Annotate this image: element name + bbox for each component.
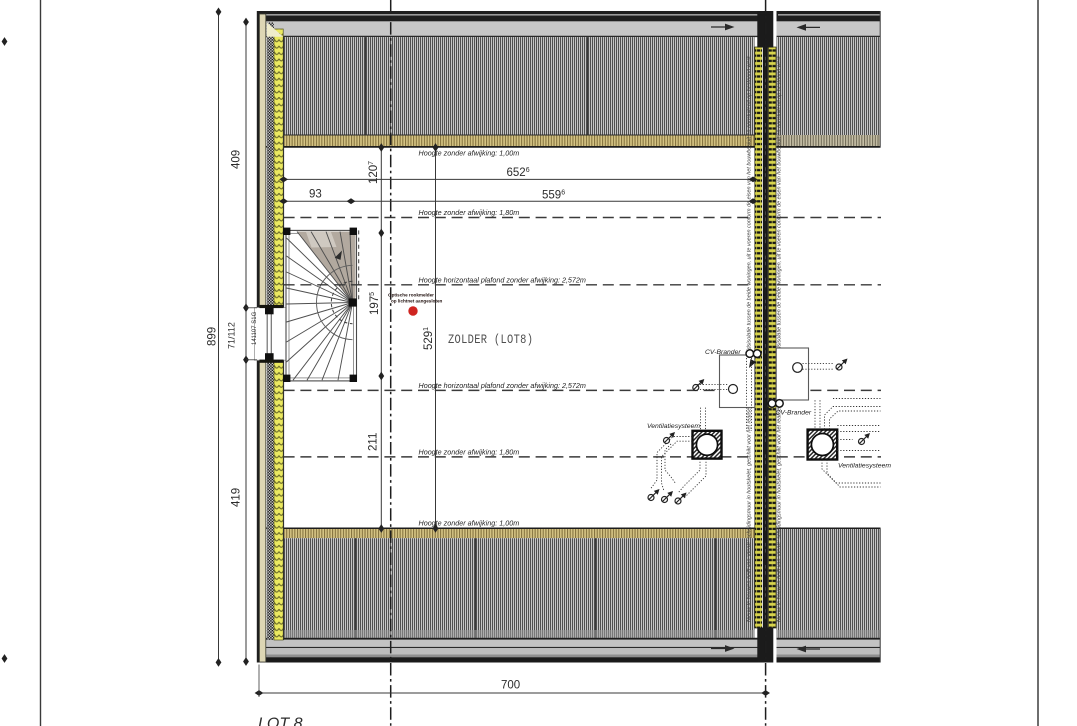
svg-text:Nieuw te bouwen helft van 'ide: Nieuw te bouwen helft van 'ideale' schei… bbox=[777, 56, 783, 622]
svg-text:Hoogte zonder afwijking: 1,80m: Hoogte zonder afwijking: 1,80m bbox=[419, 208, 520, 217]
svg-text:141107 S1G: 141107 S1G bbox=[252, 311, 258, 345]
svg-text:71/112: 71/112 bbox=[227, 322, 237, 349]
svg-text:700: 700 bbox=[501, 680, 520, 692]
svg-text:Ventilatiesysteem: Ventilatiesysteem bbox=[838, 463, 891, 470]
svg-text:Ventilatiesysteem: Ventilatiesysteem bbox=[647, 423, 700, 430]
svg-text:Hoogte horizontaal plafond zon: Hoogte horizontaal plafond zonder afwijk… bbox=[419, 381, 586, 390]
svg-text:LOT 8: LOT 8 bbox=[258, 716, 303, 726]
svg-text:899: 899 bbox=[207, 327, 219, 346]
svg-text:Hoogte zonder afwijking: 1,00m: Hoogte zonder afwijking: 1,00m bbox=[419, 149, 520, 158]
svg-text:419: 419 bbox=[231, 488, 243, 507]
svg-text:op lichtnet aangesloten: op lichtnet aangesloten bbox=[391, 298, 442, 303]
svg-text:CV-Brander: CV-Brander bbox=[776, 410, 812, 417]
svg-text:211: 211 bbox=[368, 433, 380, 451]
svg-text:Nieuw te bouwen helft van 'ide: Nieuw te bouwen helft van 'ideale' schei… bbox=[747, 56, 753, 622]
svg-text:Hoogte zonder afwijking: 1,00m: Hoogte zonder afwijking: 1,00m bbox=[419, 519, 520, 528]
svg-text:Hoogte horizontaal plafond zon: Hoogte horizontaal plafond zonder afwijk… bbox=[419, 275, 586, 284]
svg-text:93: 93 bbox=[309, 189, 322, 201]
svg-text:409: 409 bbox=[231, 150, 243, 169]
svg-text:ZOLDER (LOT8): ZOLDER (LOT8) bbox=[448, 332, 533, 347]
svg-text:Hoogte zonder afwijking: 1,80m: Hoogte zonder afwijking: 1,80m bbox=[419, 447, 520, 456]
svg-text:CV-Brander: CV-Brander bbox=[705, 349, 741, 356]
svg-text:Optische rookmelder: Optische rookmelder bbox=[388, 293, 434, 298]
